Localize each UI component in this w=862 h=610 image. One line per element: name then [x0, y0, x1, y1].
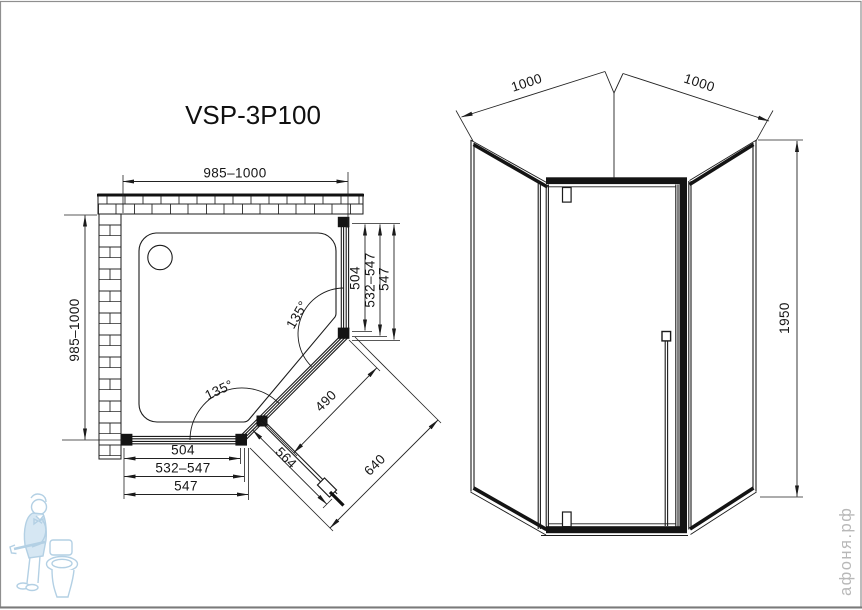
dim-front-right-width: 1000 — [682, 71, 717, 95]
dim-door-open: 564 — [272, 444, 299, 471]
left-wall-bricks — [99, 214, 121, 459]
door-top-rail — [546, 177, 687, 184]
door-pivot-bottom — [563, 512, 572, 527]
dim-bottom-total: 547 — [174, 479, 198, 494]
dim-top-width: 985–1000 — [203, 166, 266, 181]
shower-tray — [139, 233, 336, 422]
drawing-canvas: VSP-3P100 — [0, 0, 862, 610]
dim-angle-top: 135° — [283, 298, 311, 331]
corner-connector-right — [338, 328, 350, 339]
dim-right-glass: 504 — [348, 266, 363, 290]
plumber-head — [32, 500, 47, 515]
wall-profile-bottom-left — [121, 434, 132, 446]
plan-view: 985–1000 985–1000 504 532–547 547 504 53… — [62, 166, 441, 532]
door-panel-front — [538, 177, 688, 535]
plumber-legs — [27, 556, 40, 583]
drawing-title: VSP-3P100 — [185, 100, 321, 130]
dim-bottom-glass: 504 — [171, 443, 195, 458]
door-bottom-rail — [546, 526, 687, 533]
corner-connector-bottom — [235, 434, 247, 446]
shower-enclosure-drawing: VSP-3P100 — [0, 0, 862, 610]
front-view: 1000 1000 1950 — [456, 71, 803, 536]
dim-angle-bottom: 135° — [203, 377, 236, 403]
toilet-icon — [47, 540, 78, 597]
top-wall-bricks — [98, 194, 363, 214]
door-handle-cap-front — [662, 332, 671, 341]
dim-bottom-adjust: 532–547 — [155, 461, 210, 476]
site-watermark: афоня.рф — [837, 507, 855, 596]
dim-right-total: 547 — [377, 267, 392, 291]
dim-front-height: 1950 — [777, 302, 792, 334]
plumber-shoes — [26, 585, 38, 591]
left-side-panel-front — [471, 140, 548, 535]
door-pivot-plan — [257, 416, 268, 427]
door-edge-profile — [680, 183, 688, 527]
right-side-panel-front — [689, 140, 757, 535]
dim-front-left-width: 1000 — [509, 71, 544, 95]
dim-left-depth: 985–1000 — [67, 298, 82, 361]
dim-diagonal-opening: 640 — [361, 451, 388, 478]
drain-icon — [148, 245, 172, 269]
plumber-mascot-watermark — [10, 494, 78, 597]
image-border — [1, 2, 862, 608]
dim-right-adjust: 532–547 — [363, 252, 378, 307]
door-pivot-top — [563, 188, 572, 203]
